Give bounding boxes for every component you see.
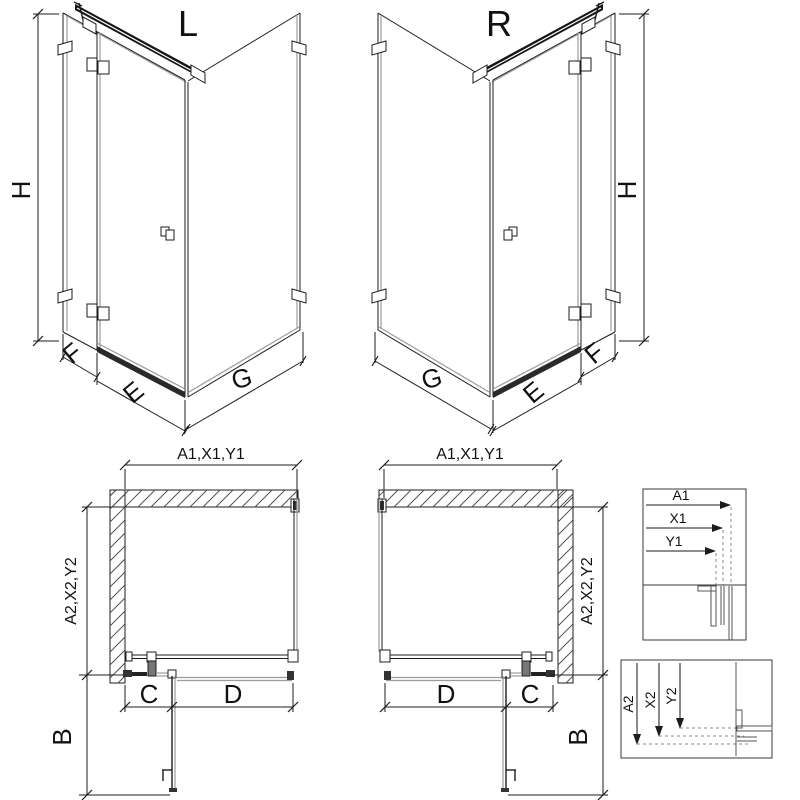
plan-view-left: A1,X1,Y1 bbox=[47, 446, 302, 800]
wall-bracket bbox=[292, 289, 306, 303]
detail-box-horizontal: A1 X1 Y1 bbox=[643, 487, 746, 640]
dim-door-e-left: E bbox=[117, 375, 150, 409]
hinge-icon bbox=[87, 304, 97, 317]
wall-bracket bbox=[372, 289, 386, 303]
iso-view-right: R H bbox=[372, 2, 649, 436]
detail-box-vertical: A2 X2 Y2 bbox=[620, 660, 772, 758]
detail-label-y1: Y1 bbox=[665, 533, 682, 549]
iso-view-left: L H bbox=[6, 2, 306, 436]
dim-height-left: H bbox=[6, 181, 36, 200]
dim-fixed-c-left: C bbox=[140, 679, 159, 709]
wall-bracket bbox=[58, 41, 72, 55]
detail-label-y2: Y2 bbox=[663, 687, 679, 704]
hinge-icon bbox=[569, 307, 580, 320]
door-knob-icon bbox=[504, 230, 512, 240]
dim-door-open-b-right: B bbox=[563, 728, 593, 745]
dim-depth-side-right: A2,X2,Y2 bbox=[579, 557, 596, 625]
wall-bracket bbox=[606, 289, 620, 303]
dim-side-g-right: G bbox=[418, 361, 445, 395]
wall-hatch bbox=[110, 490, 298, 507]
wall-bracket bbox=[292, 41, 306, 55]
dim-side-g-left: G bbox=[228, 361, 255, 395]
detail-label-a1: A1 bbox=[672, 487, 689, 503]
dim-door-open-b-left: B bbox=[47, 728, 77, 745]
wall-hatch bbox=[110, 490, 125, 683]
dim-door-d-left: D bbox=[224, 679, 243, 709]
hinge-icon bbox=[569, 61, 580, 74]
variant-label-right: R bbox=[486, 3, 512, 44]
dim-width-top-right: A1,X1,Y1 bbox=[436, 446, 504, 463]
dim-width-top-left: A1,X1,Y1 bbox=[177, 446, 245, 463]
wall-hatch bbox=[558, 490, 573, 683]
hinge-icon bbox=[581, 58, 591, 71]
dim-fixed-c-right: C bbox=[521, 679, 540, 709]
wall-bracket bbox=[606, 41, 620, 55]
door-knob-icon bbox=[166, 230, 174, 240]
detail-label-a2: A2 bbox=[620, 695, 636, 712]
dim-panel-f-right: F bbox=[578, 337, 609, 370]
hinge-icon bbox=[87, 58, 97, 71]
hinge-icon bbox=[98, 61, 109, 74]
hinge-icon bbox=[98, 307, 109, 320]
dim-panel-f-left: F bbox=[56, 337, 87, 370]
dim-height-right: H bbox=[612, 181, 642, 200]
detail-label-x1: X1 bbox=[669, 510, 686, 526]
technical-drawing-page: L H bbox=[0, 0, 800, 800]
shower-enclosure-diagram: L H bbox=[0, 0, 800, 800]
dim-door-d-right: D bbox=[437, 679, 456, 709]
hinge-icon bbox=[581, 304, 591, 317]
wall-bracket bbox=[58, 289, 72, 303]
variant-label-left: L bbox=[178, 3, 198, 44]
detail-label-x2: X2 bbox=[642, 691, 658, 708]
wall-hatch bbox=[379, 490, 573, 507]
plan-view-right: A1,X1,Y1 bbox=[378, 446, 608, 800]
wall-bracket bbox=[372, 41, 386, 55]
dim-depth-side-left: A2,X2,Y2 bbox=[63, 557, 80, 625]
